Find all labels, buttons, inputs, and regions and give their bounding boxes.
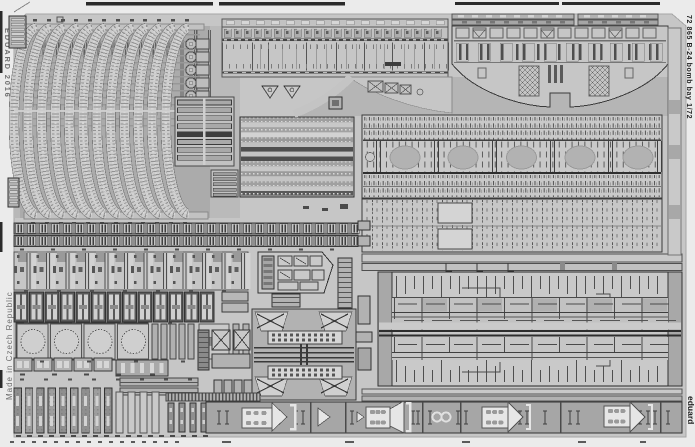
- svg-text:Made in Czech Republic: Made in Czech Republic: [5, 291, 14, 400]
- svg-text:eduard: eduard: [686, 396, 695, 424]
- svg-text:72 865 B-24 bomb bay 1/72: 72 865 B-24 bomb bay 1/72: [685, 15, 692, 119]
